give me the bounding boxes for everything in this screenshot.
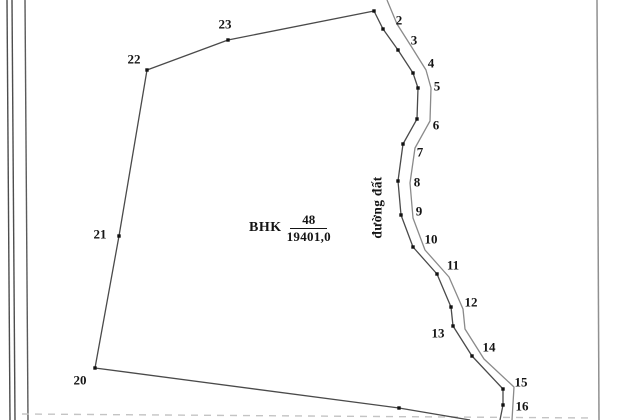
- vertex-dot: [411, 245, 414, 248]
- vertex-dot: [399, 213, 402, 216]
- vertex-dot: [449, 305, 452, 308]
- vertex-dot: [93, 366, 96, 369]
- vertex-dot: [501, 403, 504, 406]
- vertex-label: 16: [516, 399, 530, 414]
- vertex-dot: [416, 86, 419, 89]
- cadastral-map-sheet: 234567891011121314151620212223 BHK 48 19…: [0, 0, 625, 420]
- vertex-label: 21: [94, 227, 107, 242]
- vertex-label: 8: [414, 175, 421, 190]
- vertex-dot: [397, 406, 400, 409]
- vertex-label: 10: [425, 232, 438, 247]
- sheet-frame-left-margin: [25, 0, 28, 420]
- vertex-dot: [470, 354, 473, 357]
- sheet-frame-left-outer: [7, 0, 10, 420]
- vertex-label: 23: [219, 17, 233, 32]
- map-canvas: 234567891011121314151620212223: [0, 0, 625, 420]
- vertex-label: 4: [428, 56, 435, 71]
- vertex-label: 5: [434, 79, 441, 94]
- vertex-label: 9: [416, 204, 423, 219]
- vertex-dot: [145, 68, 148, 71]
- vertex-label: 12: [465, 295, 478, 310]
- vertex-label: 7: [417, 145, 424, 160]
- vertex-label: 14: [483, 340, 497, 355]
- sheet-frame-left-inner: [12, 0, 15, 420]
- land-use-code: BHK: [249, 220, 282, 236]
- vertex-label: 15: [515, 375, 529, 390]
- vertex-dot: [451, 324, 454, 327]
- vertex-dot: [501, 387, 504, 390]
- sheet-frame-right: [597, 0, 599, 420]
- vertex-label: 3: [411, 33, 418, 48]
- vertex-dot: [117, 234, 120, 237]
- bottom-dashed-line: [22, 414, 592, 418]
- parcel-area: 19401,0: [287, 229, 331, 244]
- vertex-label: 2: [396, 13, 403, 28]
- vertex-dot: [372, 9, 375, 12]
- vertex-dot: [381, 27, 384, 30]
- parcel-number: 48: [290, 213, 327, 229]
- vertex-label: 6: [433, 118, 440, 133]
- vertex-dot: [226, 38, 229, 41]
- vertex-dot: [411, 71, 414, 74]
- vertex-label: 13: [432, 326, 446, 341]
- road-name-label: đường đất: [370, 158, 387, 258]
- vertex-label: 11: [447, 258, 459, 273]
- parcel-number-area-fraction: 48 19401,0: [287, 213, 331, 243]
- vertex-dot: [401, 142, 404, 145]
- vertex-dot: [396, 48, 399, 51]
- parcel-label: BHK 48 19401,0: [249, 213, 331, 243]
- vertex-dot: [415, 117, 418, 120]
- vertex-dot: [396, 179, 399, 182]
- vertex-dot: [435, 272, 438, 275]
- vertex-label: 20: [74, 373, 87, 388]
- vertex-label: 22: [128, 52, 141, 67]
